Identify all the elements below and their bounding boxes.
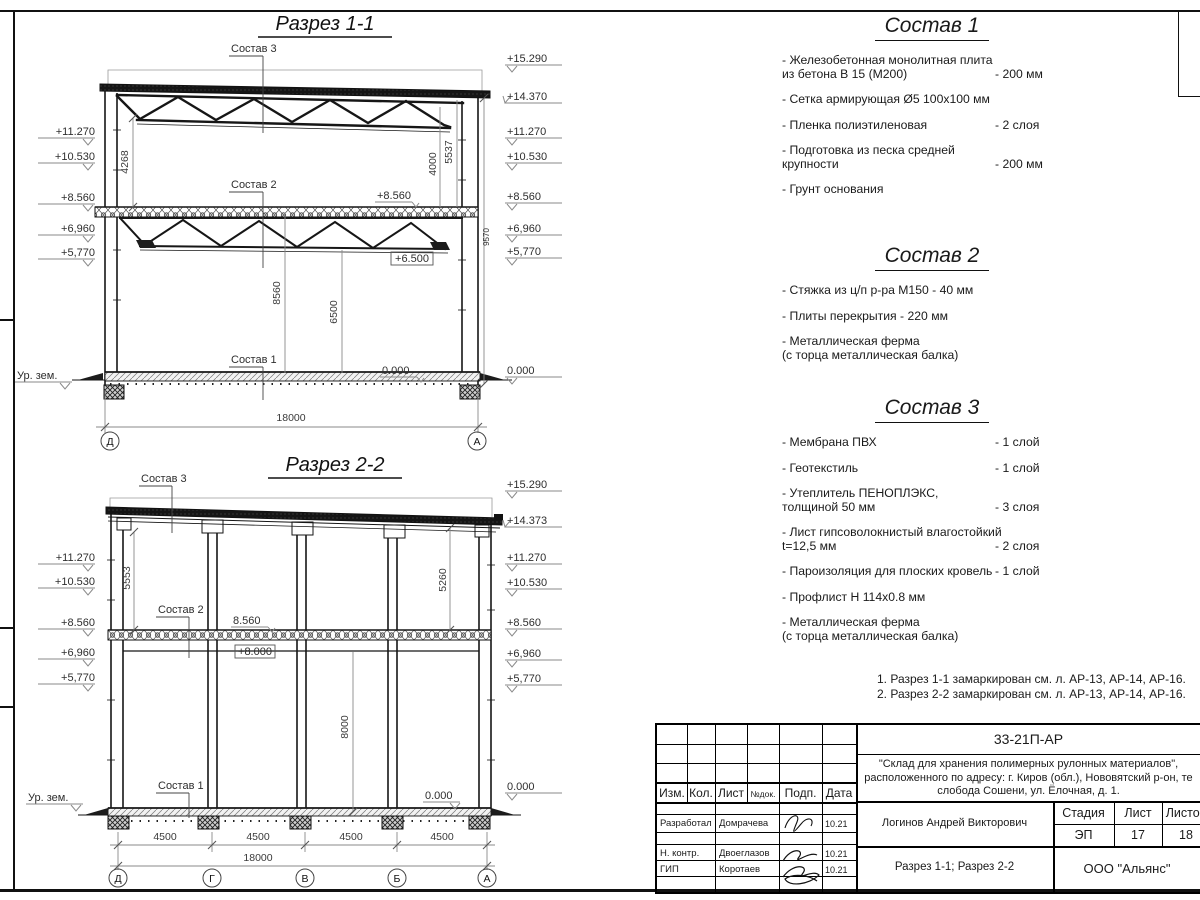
elevation-mark: 0.000 xyxy=(507,781,535,793)
elevation-mark: +14.373 xyxy=(507,515,547,527)
callout-sostav3: Состав 3 xyxy=(231,43,277,55)
section1-axes: Д А xyxy=(101,432,486,450)
dim-5553: 5553 xyxy=(121,566,133,590)
notes: 1. Разрез 1-1 замаркирован см. л. АР-13,… xyxy=(877,672,1186,701)
stage-value: ЭП xyxy=(1053,828,1114,842)
dim-5260: 5260 xyxy=(437,568,449,592)
section1-marks-right: +15.290 +14.370 +11.270 +10.530 +8.560 +… xyxy=(503,53,562,384)
dim-8560: 8560 xyxy=(271,281,283,305)
level-8560: +8.560 xyxy=(377,190,411,202)
section2-title: Разрез 2-2 xyxy=(285,454,384,476)
section1-structure xyxy=(72,70,512,399)
elevation-mark: +6,960 xyxy=(61,647,95,659)
sheet-value: 17 xyxy=(1114,828,1162,842)
note-line: 1. Разрез 1-1 замаркирован см. л. АР-13,… xyxy=(877,672,1186,687)
elevation-mark: +5,770 xyxy=(61,672,95,684)
material-value: - 2 слоя xyxy=(995,119,1039,133)
section1-title: Разрез 1-1 xyxy=(275,13,374,35)
section2-axes: Д Г В Б А xyxy=(109,869,496,887)
elevation-mark: +14.370 xyxy=(507,91,547,103)
sheets-label: Листов xyxy=(1162,806,1200,820)
material-item: - Подготовка из песка среднейкрупности -… xyxy=(782,144,1082,171)
section2-callouts: Состав 3 Состав 2 Состав 1 xyxy=(139,473,204,818)
section1-marks-left: +11.270 +10.530 +8.560 +6,960 +5,770 Ур.… xyxy=(15,126,95,389)
level-0000: 0.000 xyxy=(382,365,410,377)
elevation-mark: +15.290 xyxy=(507,53,547,65)
dim-5537: 5537 xyxy=(443,140,455,164)
section2-marks-right: +15.290 +14.373 +11.270 +10.530 +8.560 +… xyxy=(503,479,562,800)
sheet-title: Разрез 1-1; Разрез 2-2 xyxy=(856,861,1053,873)
dim-bay: 4500 xyxy=(246,831,270,843)
signature xyxy=(781,810,821,838)
sostav1-title: Состав 1 xyxy=(875,14,990,41)
object-description: "Склад для хранения полимерных рулонных … xyxy=(856,758,1200,799)
sostav2-list: Состав 2 - Стяжка из ц/п р-ра М150 - 40 … xyxy=(782,244,1082,374)
sostav2-title: Состав 2 xyxy=(875,244,990,271)
elevation-mark: +6,960 xyxy=(61,223,95,235)
material-item: - Стяжка из ц/п р-ра М150 - 40 мм xyxy=(782,284,1082,298)
elevation-mark: +11.270 xyxy=(56,552,95,564)
material-item: - Железобетонная монолитная плитаиз бето… xyxy=(782,54,1082,81)
sostav3-title: Состав 3 xyxy=(875,396,990,423)
axis-bubble: А xyxy=(483,873,490,885)
elevation-mark: +8.560 xyxy=(61,192,95,204)
dim-4268: 4268 xyxy=(119,150,131,174)
elevation-mark: +8.560 xyxy=(61,617,95,629)
level-8560: 8.560 xyxy=(233,615,261,627)
elevation-mark: +15.290 xyxy=(507,479,547,491)
axis-bubble: Д xyxy=(114,873,121,885)
elevation-mark: +6,960 xyxy=(507,648,541,660)
callout-sostav3: Состав 3 xyxy=(141,473,187,485)
signer-date: 10.21 xyxy=(825,819,848,829)
material-value: - 3 слоя xyxy=(995,501,1039,515)
signer-name: Коротаев xyxy=(719,864,760,875)
elevation-mark: 0.000 xyxy=(507,365,535,377)
material-item: - Утеплитель ПЕНОПЛЭКС,толщиной 50 мм - … xyxy=(782,487,1082,514)
elevation-mark: +11.270 xyxy=(507,126,546,138)
titleblock-divider xyxy=(856,801,1200,803)
dim-18000: 18000 xyxy=(276,412,305,424)
section1-dimensions: 4268 8560 6500 5537 4000 9570 18000 xyxy=(96,94,491,433)
sostav3-list: Состав 3 - Мембрана ПВХ - 1 слой - Геоте… xyxy=(782,396,1082,655)
section2-marks-left: +11.270 +10.530 +8.560 +6,960 +5,770 Ур.… xyxy=(26,552,95,811)
material-item: - Пленка полиэтиленовая - 2 слоя xyxy=(782,119,1082,133)
signer-role: Н. контр. xyxy=(660,848,699,859)
note-line: 2. Разрез 2-2 замаркирован см. л. АР-13,… xyxy=(877,687,1186,702)
section2-levels: 8.560 +8.000 0.000 xyxy=(231,615,460,809)
elevation-mark: +6,960 xyxy=(507,223,541,235)
signer-role: ГИП xyxy=(660,864,679,875)
section1-callouts: Состав 3 Состав 2 Состав 1 xyxy=(229,43,277,400)
material-value: - 1 слой xyxy=(995,462,1040,476)
material-item: - Металлическая ферма(с торца металличес… xyxy=(782,335,1082,362)
sheet-label: Лист xyxy=(1114,806,1162,820)
drawing-sheet: { "s1": { "title": "Разрез 1-1", "marks_… xyxy=(0,0,1200,900)
elevation-mark: +10.530 xyxy=(55,576,95,588)
elevation-mark: +8.560 xyxy=(507,191,541,203)
callout-sostav1: Состав 1 xyxy=(231,354,277,366)
corner-stamp-box xyxy=(1178,11,1200,97)
axis-bubble: В xyxy=(301,873,308,885)
dim-4000: 4000 xyxy=(427,152,439,176)
material-value: - 200 мм xyxy=(995,158,1043,172)
material-item: - Плиты перекрытия - 220 мм xyxy=(782,310,1082,324)
signer-date: 10.21 xyxy=(825,865,848,875)
elevation-mark: +5,770 xyxy=(507,673,541,685)
section-2-2-drawing: Разрез 2-2 xyxy=(0,450,610,900)
sheets-value: 18 xyxy=(1162,828,1200,842)
company-name: ООО "Альянс" xyxy=(1053,861,1200,876)
material-value: - 1 слой xyxy=(995,436,1040,450)
elevation-mark: +10.530 xyxy=(55,151,95,163)
callout-sostav1: Состав 1 xyxy=(158,780,204,792)
dim-6500: 6500 xyxy=(328,300,340,324)
col-data: Дата xyxy=(822,786,856,800)
col-kol: Кол. xyxy=(687,786,715,800)
signer-role: Разработал xyxy=(660,818,712,829)
elevation-mark: +10.530 xyxy=(507,577,547,589)
dim-bay: 4500 xyxy=(153,831,177,843)
section-1-1-drawing: Разрез 1-1 xyxy=(0,0,610,452)
elevation-mark: +11.270 xyxy=(507,552,546,564)
ground-level-label: Ур. зем. xyxy=(17,370,57,382)
material-value: - 1 слой xyxy=(995,565,1040,579)
stage-label: Стадия xyxy=(1053,806,1114,820)
axis-bubble: Д xyxy=(106,436,113,448)
material-value: - 200 мм xyxy=(995,68,1043,82)
material-item: - Металлическая ферма(с торца металличес… xyxy=(782,616,1082,643)
col-izm: Изм. xyxy=(657,786,687,800)
material-item: - Пароизоляция для плоских кровель - 1 с… xyxy=(782,565,1082,579)
material-item: - Мембрана ПВХ - 1 слой xyxy=(782,436,1082,450)
material-item: - Грунт основания xyxy=(782,183,1082,197)
dim-18000: 18000 xyxy=(243,852,272,864)
level-8000: +8.000 xyxy=(238,646,272,658)
dim-bay: 4500 xyxy=(339,831,363,843)
material-item: - Геотекстиль - 1 слой xyxy=(782,462,1082,476)
material-item: - Сетка армирующая Ø5 100x100 мм xyxy=(782,93,1082,107)
axis-bubble: А xyxy=(473,436,480,448)
dim-bay: 4500 xyxy=(430,831,454,843)
elevation-mark: +11.270 xyxy=(56,126,95,138)
callout-sostav2: Состав 2 xyxy=(231,179,277,191)
sostav1-list: Состав 1 - Железобетонная монолитная пли… xyxy=(782,14,1082,209)
title-block: Изм. Кол. Лист №док. Подп. Дата Разработ… xyxy=(655,723,1200,894)
level-0000: 0.000 xyxy=(425,790,453,802)
elevation-mark: +5,770 xyxy=(507,246,541,258)
signer-name: Двоеглазов xyxy=(719,848,770,859)
callout-sostav2: Состав 2 xyxy=(158,604,204,616)
elevation-mark: +10.530 xyxy=(507,151,547,163)
col-ndoc: №док. xyxy=(747,789,779,799)
elevation-mark: +5,770 xyxy=(61,247,95,259)
material-item: - Профлист Н 114x0.8 мм xyxy=(782,591,1082,605)
section2-structure xyxy=(78,498,521,829)
material-value: - 2 слоя xyxy=(995,540,1039,554)
signature xyxy=(779,845,823,889)
dim-9570: 9570 xyxy=(482,228,491,246)
elevation-mark: +8.560 xyxy=(507,617,541,629)
material-item: - Лист гипсоволокнистый влагостойкийt=12… xyxy=(782,526,1082,553)
ground-level-label: Ур. зем. xyxy=(28,792,68,804)
doc-number: 33-21П-АР xyxy=(856,731,1200,747)
level-6500: +6.500 xyxy=(395,253,429,265)
axis-bubble: Б xyxy=(394,873,401,885)
col-podp: Подп. xyxy=(779,786,822,800)
signer-date: 10.21 xyxy=(825,849,848,859)
signer-name: Домрачева xyxy=(719,818,768,829)
col-list: Лист xyxy=(715,786,747,800)
axis-bubble: Г xyxy=(209,873,215,885)
dim-8000: 8000 xyxy=(339,715,351,739)
author-name: Логинов Андрей Викторович xyxy=(856,817,1053,829)
